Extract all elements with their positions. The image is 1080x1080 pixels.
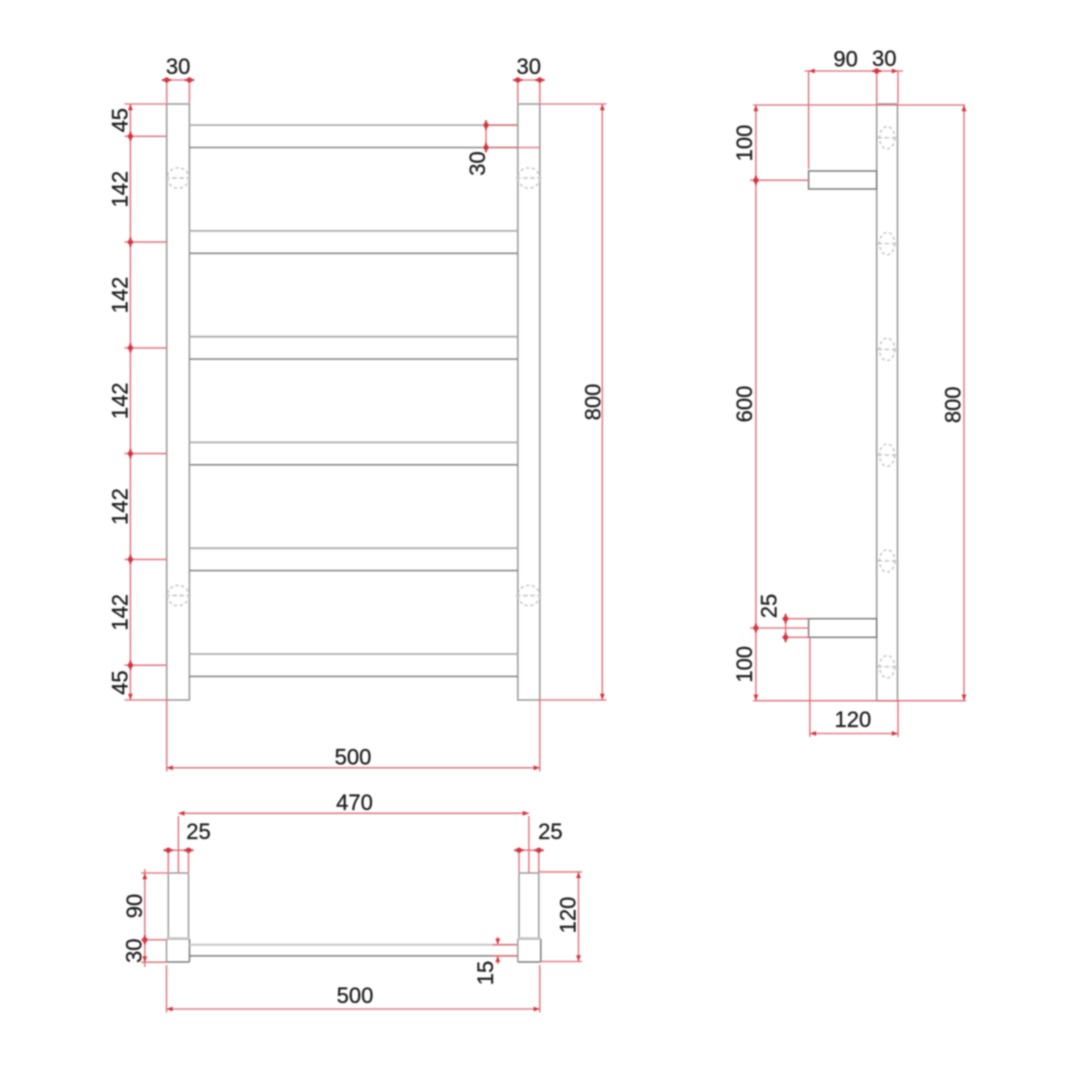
svg-text:600: 600 bbox=[732, 386, 757, 423]
svg-text:45: 45 bbox=[108, 670, 133, 694]
svg-text:142: 142 bbox=[108, 277, 133, 314]
svg-text:142: 142 bbox=[108, 594, 133, 631]
svg-text:800: 800 bbox=[941, 386, 966, 423]
svg-text:142: 142 bbox=[108, 382, 133, 419]
svg-text:120: 120 bbox=[556, 897, 581, 934]
svg-text:142: 142 bbox=[108, 171, 133, 208]
svg-text:30: 30 bbox=[517, 54, 541, 79]
svg-text:100: 100 bbox=[732, 125, 757, 162]
svg-text:25: 25 bbox=[538, 819, 562, 844]
svg-text:120: 120 bbox=[835, 707, 872, 732]
svg-text:500: 500 bbox=[337, 983, 374, 1008]
svg-text:90: 90 bbox=[833, 47, 857, 72]
svg-text:15: 15 bbox=[473, 961, 498, 985]
svg-text:90: 90 bbox=[122, 894, 147, 918]
svg-text:25: 25 bbox=[757, 594, 782, 618]
svg-text:500: 500 bbox=[335, 745, 372, 770]
svg-text:30: 30 bbox=[465, 151, 490, 175]
svg-text:25: 25 bbox=[186, 819, 210, 844]
svg-text:800: 800 bbox=[581, 384, 606, 421]
svg-text:30: 30 bbox=[122, 939, 147, 963]
svg-text:470: 470 bbox=[336, 790, 373, 815]
svg-text:45: 45 bbox=[108, 108, 133, 132]
svg-text:142: 142 bbox=[108, 488, 133, 525]
svg-text:100: 100 bbox=[732, 646, 757, 683]
svg-text:30: 30 bbox=[872, 46, 896, 71]
svg-text:30: 30 bbox=[166, 54, 190, 79]
